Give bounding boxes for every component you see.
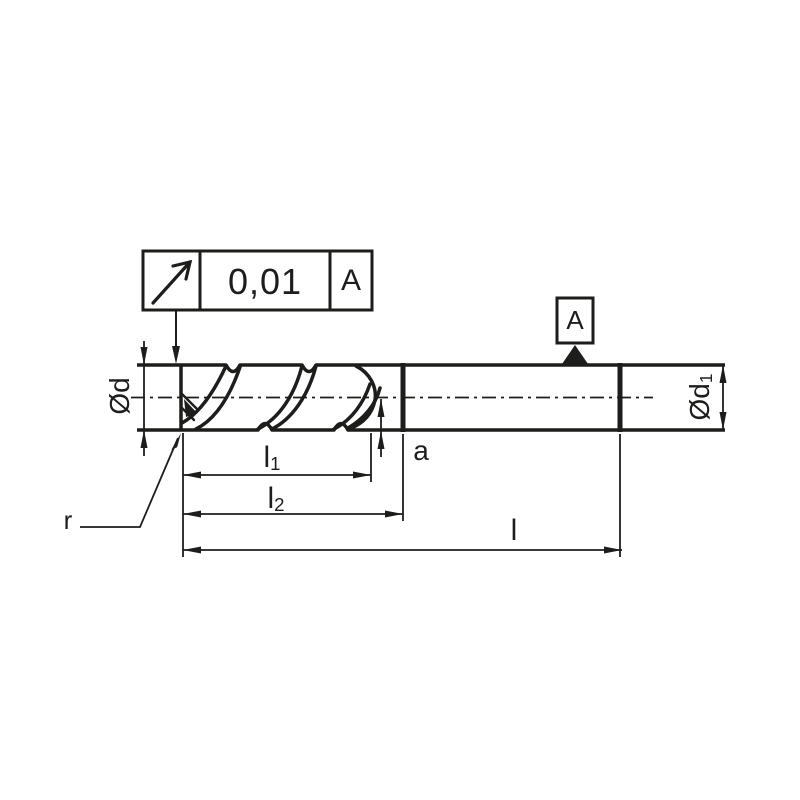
cut-length-label-sub: 2 [274,494,284,515]
a-dimension [378,399,385,457]
cut-length-label-base: l [267,482,274,515]
datum-letter-label: A [566,307,583,333]
tolerance-datum-ref-label: A [341,266,361,296]
circular-runout-arrow-icon [153,262,190,303]
cutting-diameter-dimension [141,341,148,456]
extension-lines [183,433,620,557]
flute-length-label-base: l [263,441,270,474]
cut-length-dimension [183,511,403,518]
flute-length-label-sub: 1 [270,453,280,474]
shank-diameter-label-base: Ød [684,383,715,420]
flute-length-label: l1 [263,443,280,473]
overall-length-label: l [511,516,518,546]
cutting-diameter-label: Ød [106,377,134,414]
overall-length-dimension [183,547,622,554]
a-dimension-label: a [413,437,429,465]
shank-diameter-label: Ød1 [686,373,714,420]
shank-diameter-label-sub: 1 [696,373,716,383]
tolerance-leader-line [172,310,180,364]
corner-radius-leader [80,433,181,527]
technical-drawing-endmill: 0,01 A A Ød Ød1 l1 l2 l a r [0,0,800,800]
corner-radius-label: r [64,507,73,533]
cut-length-label: l2 [267,484,284,514]
shank-diameter-dimension [720,365,727,430]
tolerance-value-label: 0,01 [228,264,302,300]
